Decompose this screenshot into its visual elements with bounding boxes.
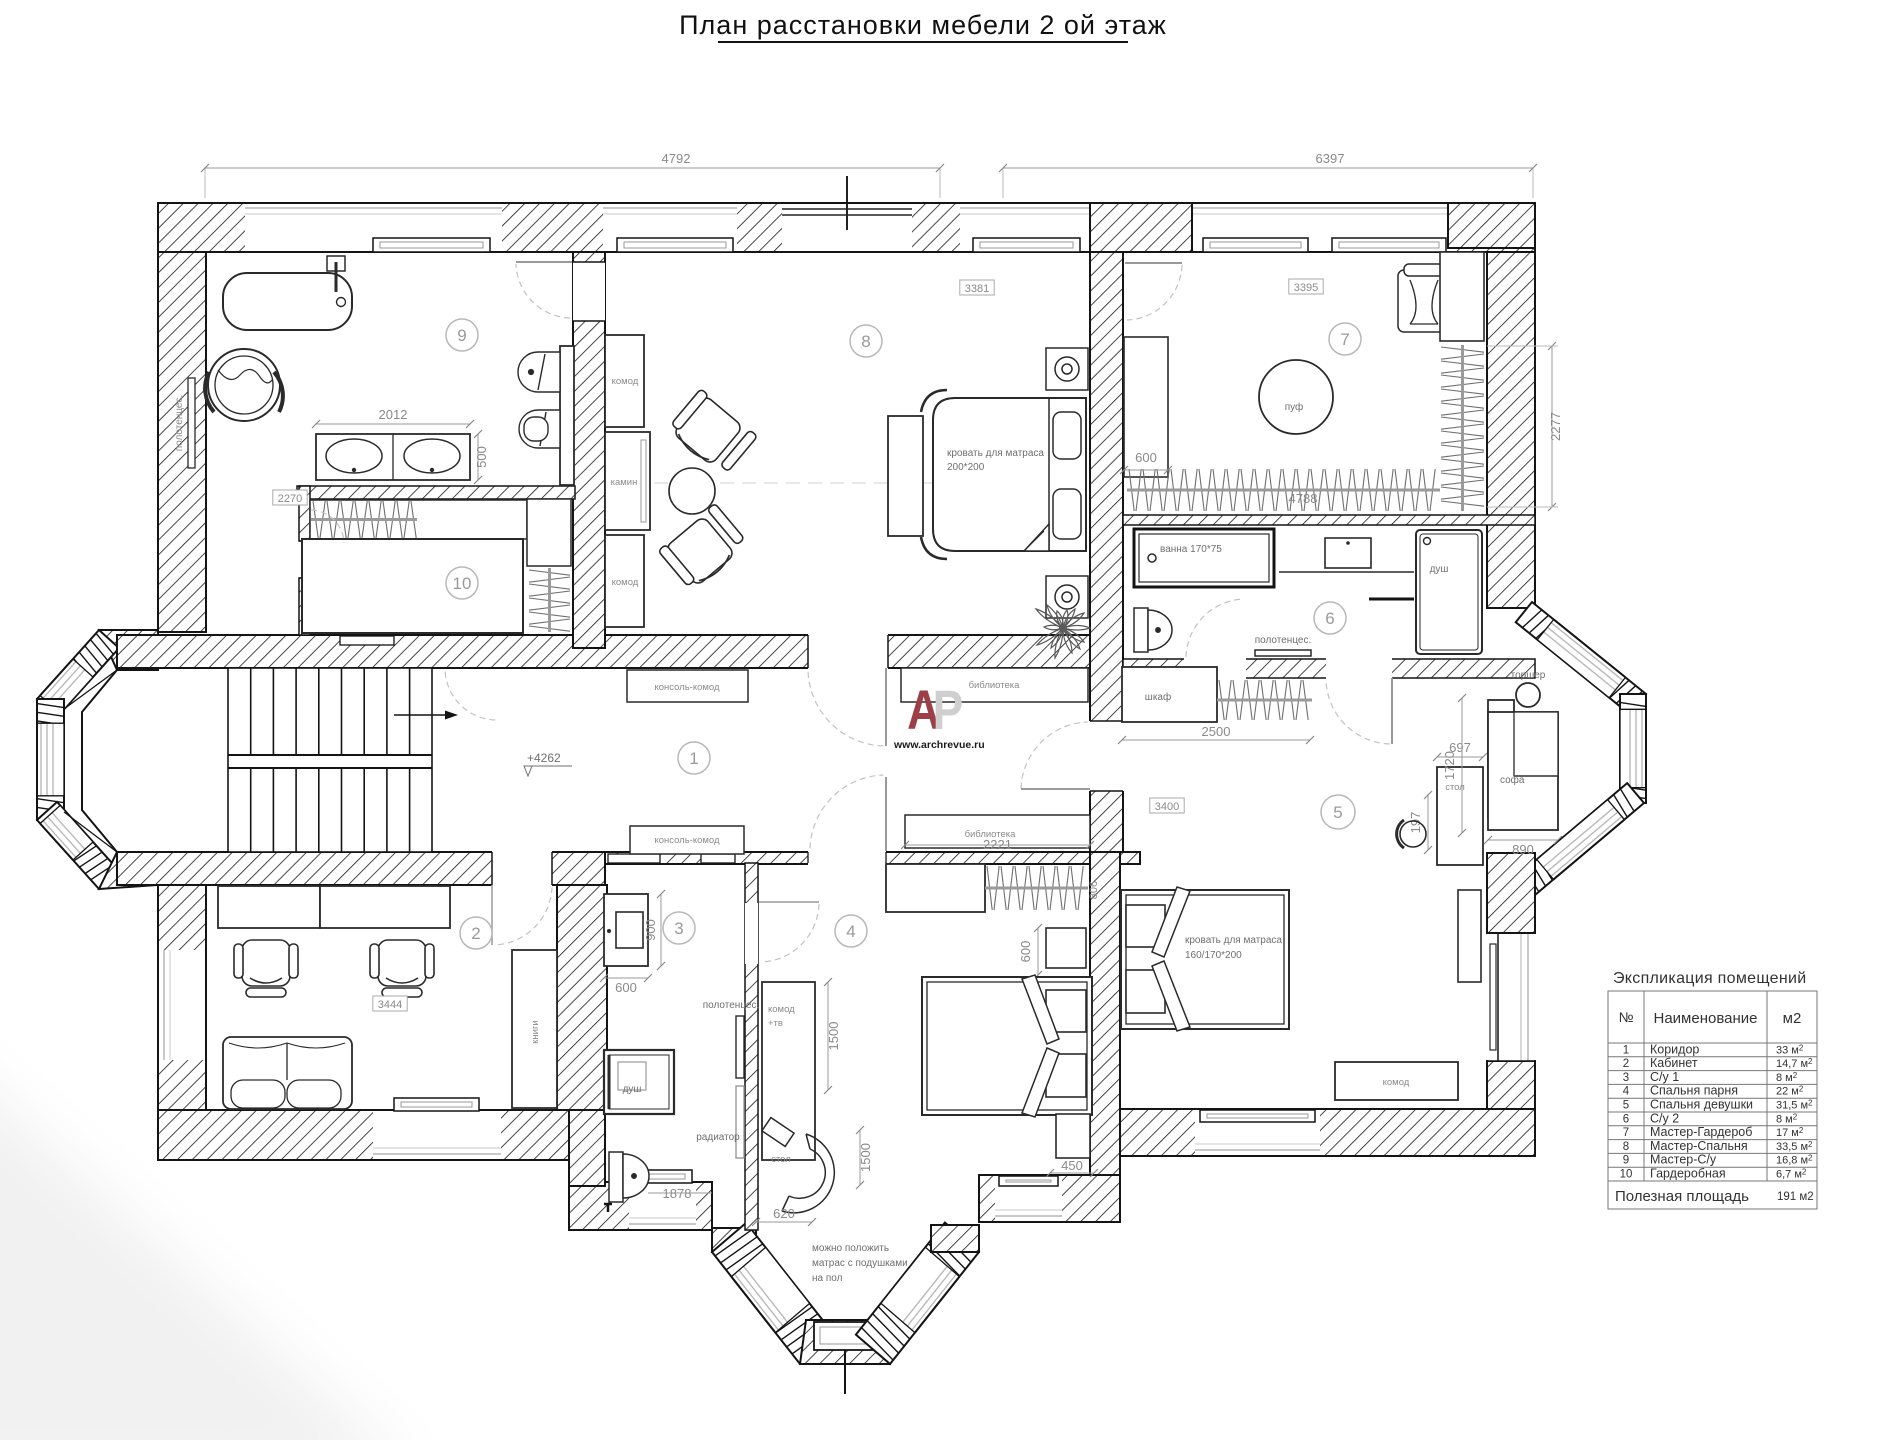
- svg-text:№: №: [1618, 1009, 1633, 1025]
- svg-text:4: 4: [846, 922, 855, 941]
- svg-text:5: 5: [1623, 1100, 1629, 1112]
- svg-text:книги: книги: [530, 1020, 541, 1043]
- svg-text:160/170*200: 160/170*200: [1185, 950, 1242, 961]
- svg-text:стол: стол: [771, 1154, 791, 1165]
- svg-text:Мастер-Гардероб: Мастер-Гардероб: [1650, 1125, 1752, 1139]
- svg-text:806: 806: [1088, 881, 1100, 899]
- svg-text:шкаф: шкаф: [1145, 691, 1171, 703]
- svg-text:3: 3: [1623, 1072, 1629, 1084]
- svg-text:33,5 м2: 33,5 м2: [1776, 1140, 1813, 1153]
- svg-text:8: 8: [861, 332, 870, 351]
- svg-text:620: 620: [773, 1206, 795, 1221]
- svg-text:600: 600: [615, 980, 637, 995]
- svg-text:душ: душ: [623, 1084, 642, 1095]
- svg-text:600: 600: [1018, 941, 1033, 963]
- svg-text:полотенцес.: полотенцес.: [703, 1000, 760, 1011]
- svg-text:радиатор: радиатор: [696, 1132, 740, 1143]
- svg-text:450: 450: [1061, 1158, 1083, 1173]
- svg-text:197: 197: [1408, 812, 1423, 834]
- svg-text:4: 4: [1623, 1086, 1630, 1098]
- svg-text:1: 1: [1623, 1044, 1629, 1056]
- svg-text:4792: 4792: [662, 151, 691, 166]
- svg-text:9: 9: [1623, 1155, 1629, 1167]
- svg-text:Р: Р: [933, 679, 964, 741]
- svg-text:1720: 1720: [1442, 751, 1457, 780]
- svg-text:матрас с подушками: матрас с подушками: [812, 1258, 908, 1269]
- svg-text:500: 500: [474, 446, 489, 468]
- svg-text:3444: 3444: [378, 999, 402, 1011]
- svg-text:торшер: торшер: [1511, 670, 1546, 681]
- svg-text:4788: 4788: [1289, 491, 1318, 506]
- svg-text:комод: комод: [612, 577, 639, 588]
- svg-text:200*200: 200*200: [947, 462, 985, 473]
- svg-text:душ: душ: [1430, 564, 1449, 575]
- svg-text:16,8 м2: 16,8 м2: [1776, 1154, 1813, 1167]
- svg-text:900: 900: [643, 919, 658, 941]
- svg-text:1500: 1500: [826, 1022, 841, 1051]
- svg-text:План расстановки мебели 2 ой э: План расстановки мебели 2 ой этаж: [679, 10, 1167, 40]
- svg-text:ванна 170*75: ванна 170*75: [1160, 544, 1222, 555]
- svg-text:5: 5: [1333, 803, 1342, 822]
- svg-text:комод: комод: [612, 376, 639, 387]
- svg-text:2: 2: [471, 924, 480, 943]
- svg-text:9: 9: [457, 326, 466, 345]
- svg-text:на пол: на пол: [812, 1273, 843, 1284]
- svg-text:С/у 2: С/у 2: [1650, 1111, 1679, 1125]
- svg-text:м2: м2: [1783, 1010, 1802, 1027]
- svg-text:Спальня девушки: Спальня девушки: [1650, 1098, 1753, 1112]
- svg-text:3400: 3400: [1155, 801, 1179, 813]
- svg-text:Мастер-С/у: Мастер-С/у: [1650, 1153, 1717, 1167]
- svg-text:Наименование: Наименование: [1654, 1010, 1758, 1027]
- svg-text:8: 8: [1623, 1141, 1629, 1153]
- svg-text:3395: 3395: [1294, 282, 1318, 294]
- svg-text:2221: 2221: [983, 837, 1012, 852]
- svg-text:14,7 м2: 14,7 м2: [1776, 1057, 1813, 1070]
- svg-text:кровать для матраса: кровать для матраса: [947, 448, 1044, 459]
- svg-text:комод: комод: [1383, 1077, 1410, 1088]
- svg-text:камин: камин: [611, 477, 638, 488]
- svg-text:2277: 2277: [1548, 412, 1563, 441]
- svg-text:консоль-комод: консоль-комод: [654, 682, 720, 693]
- svg-text:Полезная площадь: Полезная площадь: [1615, 1188, 1749, 1205]
- svg-text:7: 7: [1340, 330, 1349, 349]
- svg-text:2500: 2500: [1202, 724, 1231, 739]
- svg-text:комод: комод: [768, 1004, 795, 1015]
- svg-text:2: 2: [1623, 1058, 1629, 1070]
- svg-text:7: 7: [1623, 1127, 1629, 1139]
- svg-text:3381: 3381: [965, 283, 989, 295]
- svg-text:С/у 1: С/у 1: [1650, 1070, 1679, 1084]
- svg-text:пуф: пуф: [1285, 401, 1304, 413]
- svg-text:Гардеробная: Гардеробная: [1650, 1167, 1726, 1181]
- svg-text:кровать для матраса: кровать для матраса: [1185, 935, 1282, 946]
- svg-text:можно положить: можно положить: [812, 1243, 889, 1254]
- svg-text:1500: 1500: [858, 1143, 873, 1172]
- svg-text:+4262: +4262: [527, 751, 561, 765]
- svg-text:1: 1: [689, 749, 698, 768]
- svg-text:191 м2: 191 м2: [1777, 1191, 1814, 1203]
- svg-text:Спальня парня: Спальня парня: [1650, 1084, 1738, 1098]
- svg-text:10: 10: [1620, 1169, 1633, 1181]
- svg-text:600: 600: [1135, 450, 1157, 465]
- svg-text:Коридор: Коридор: [1650, 1042, 1699, 1056]
- svg-text:2012: 2012: [379, 407, 408, 422]
- svg-text:10: 10: [453, 574, 472, 593]
- svg-text:полотенцес.: полотенцес.: [1255, 635, 1312, 646]
- svg-text:софа: софа: [1500, 774, 1525, 786]
- svg-text:2270: 2270: [278, 493, 302, 505]
- svg-text:Экспликация помещений: Экспликация помещений: [1613, 970, 1806, 987]
- svg-text:890: 890: [1512, 842, 1534, 857]
- svg-text:6: 6: [1623, 1113, 1629, 1125]
- svg-text:библиотека: библиотека: [969, 680, 1021, 691]
- svg-text:+тв: +тв: [768, 1018, 783, 1029]
- svg-text:6397: 6397: [1316, 151, 1345, 166]
- svg-text:6: 6: [1325, 609, 1334, 628]
- svg-text:31,5 м2: 31,5 м2: [1776, 1099, 1813, 1112]
- svg-text:3: 3: [674, 919, 683, 938]
- svg-text:Кабинет: Кабинет: [1650, 1056, 1698, 1070]
- svg-text:консоль-комод: консоль-комод: [654, 835, 720, 846]
- svg-text:Мастер-Спальня: Мастер-Спальня: [1650, 1139, 1748, 1153]
- svg-text:www.archrevue.ru: www.archrevue.ru: [893, 739, 985, 751]
- svg-text:полотенцес.: полотенцес.: [174, 395, 185, 452]
